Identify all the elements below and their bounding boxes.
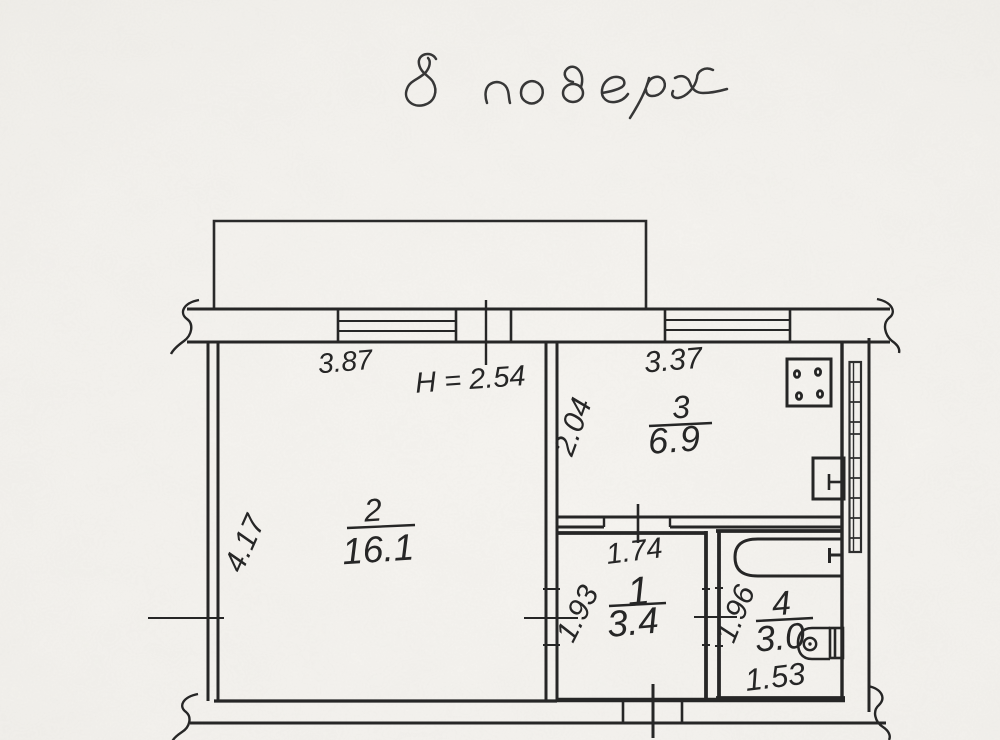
svg-text:3.87: 3.87	[317, 344, 375, 380]
svg-text:2: 2	[362, 491, 383, 528]
svg-text:16.1: 16.1	[341, 526, 416, 572]
svg-text:1.74: 1.74	[604, 532, 664, 571]
svg-text:1.53: 1.53	[743, 656, 807, 698]
svg-text:3.37: 3.37	[643, 341, 705, 379]
